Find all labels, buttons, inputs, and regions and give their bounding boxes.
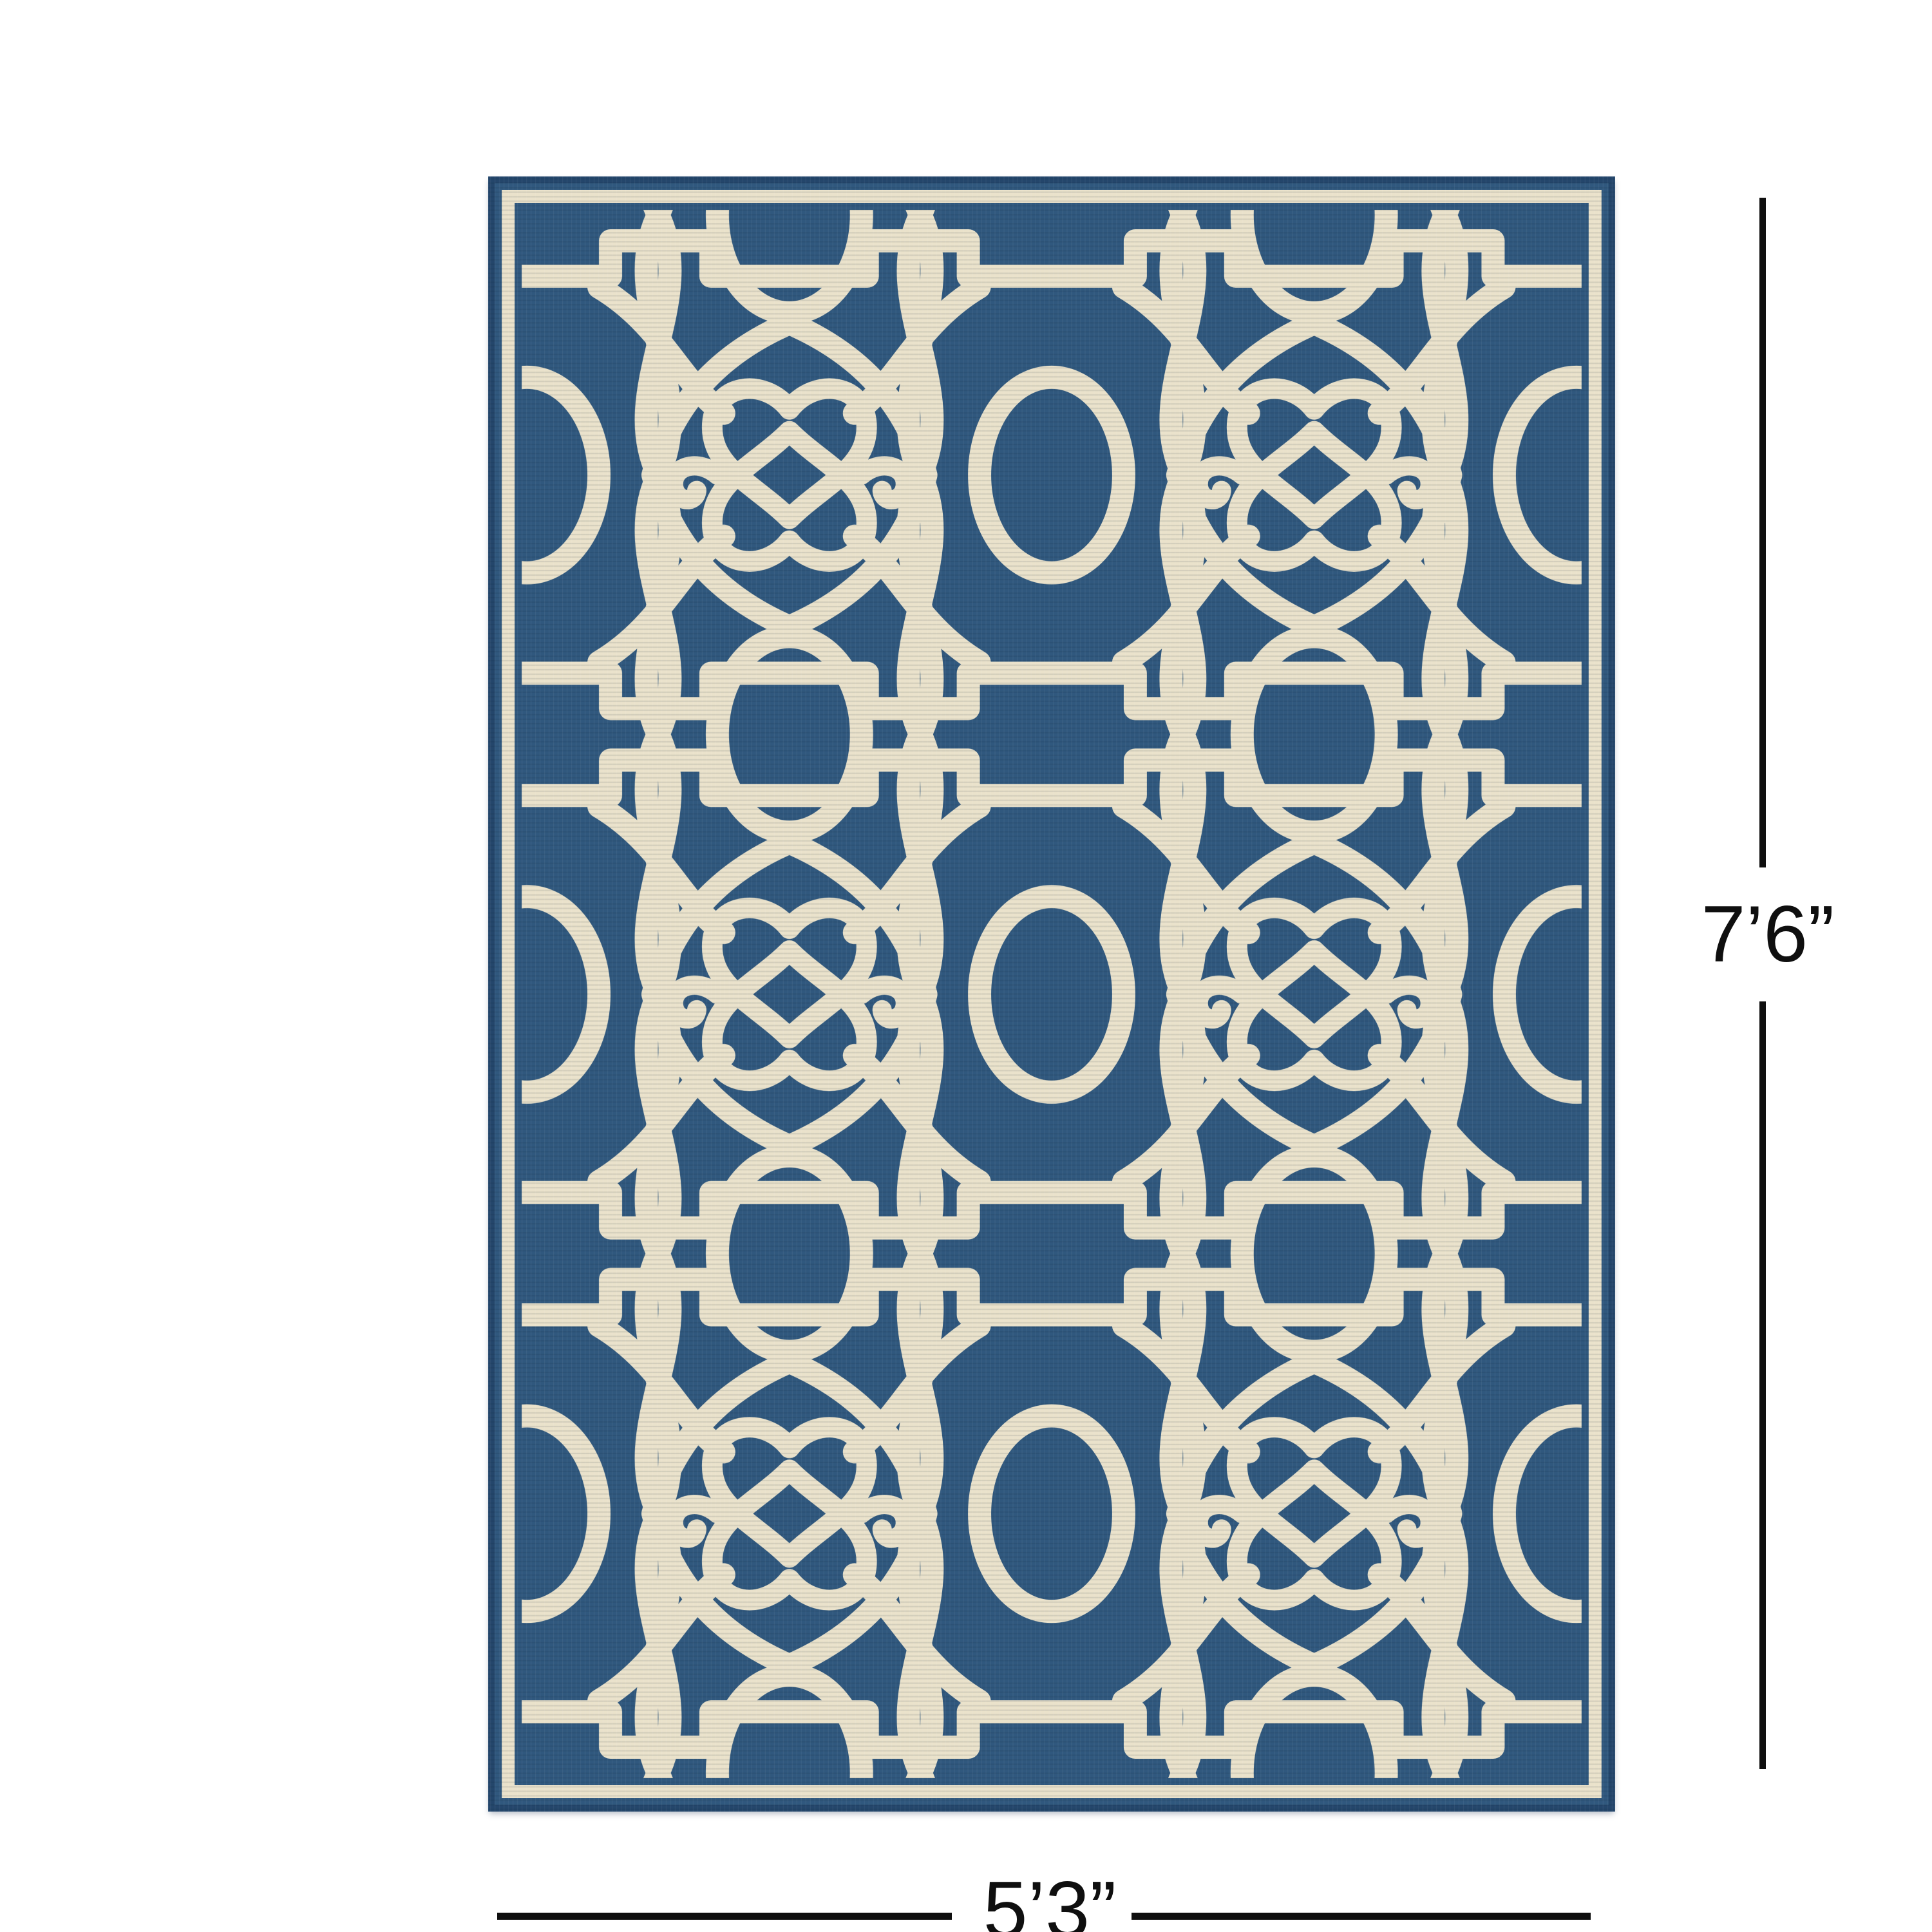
width-dimension-line-right (1132, 1913, 1591, 1920)
rug-graphic (488, 176, 1615, 1812)
height-dimension-line-lower (1759, 1001, 1766, 1769)
product-dimension-image: 7’6” 5’3” (0, 0, 1932, 1932)
height-dimension-label: 7’6” (1701, 891, 1835, 978)
width-dimension-line-left (497, 1913, 952, 1920)
rug-weave-texture (488, 176, 1615, 1812)
height-dimension-line-upper (1759, 198, 1766, 867)
width-dimension-label: 5’3” (983, 1866, 1117, 1932)
rug-image (488, 176, 1615, 1812)
